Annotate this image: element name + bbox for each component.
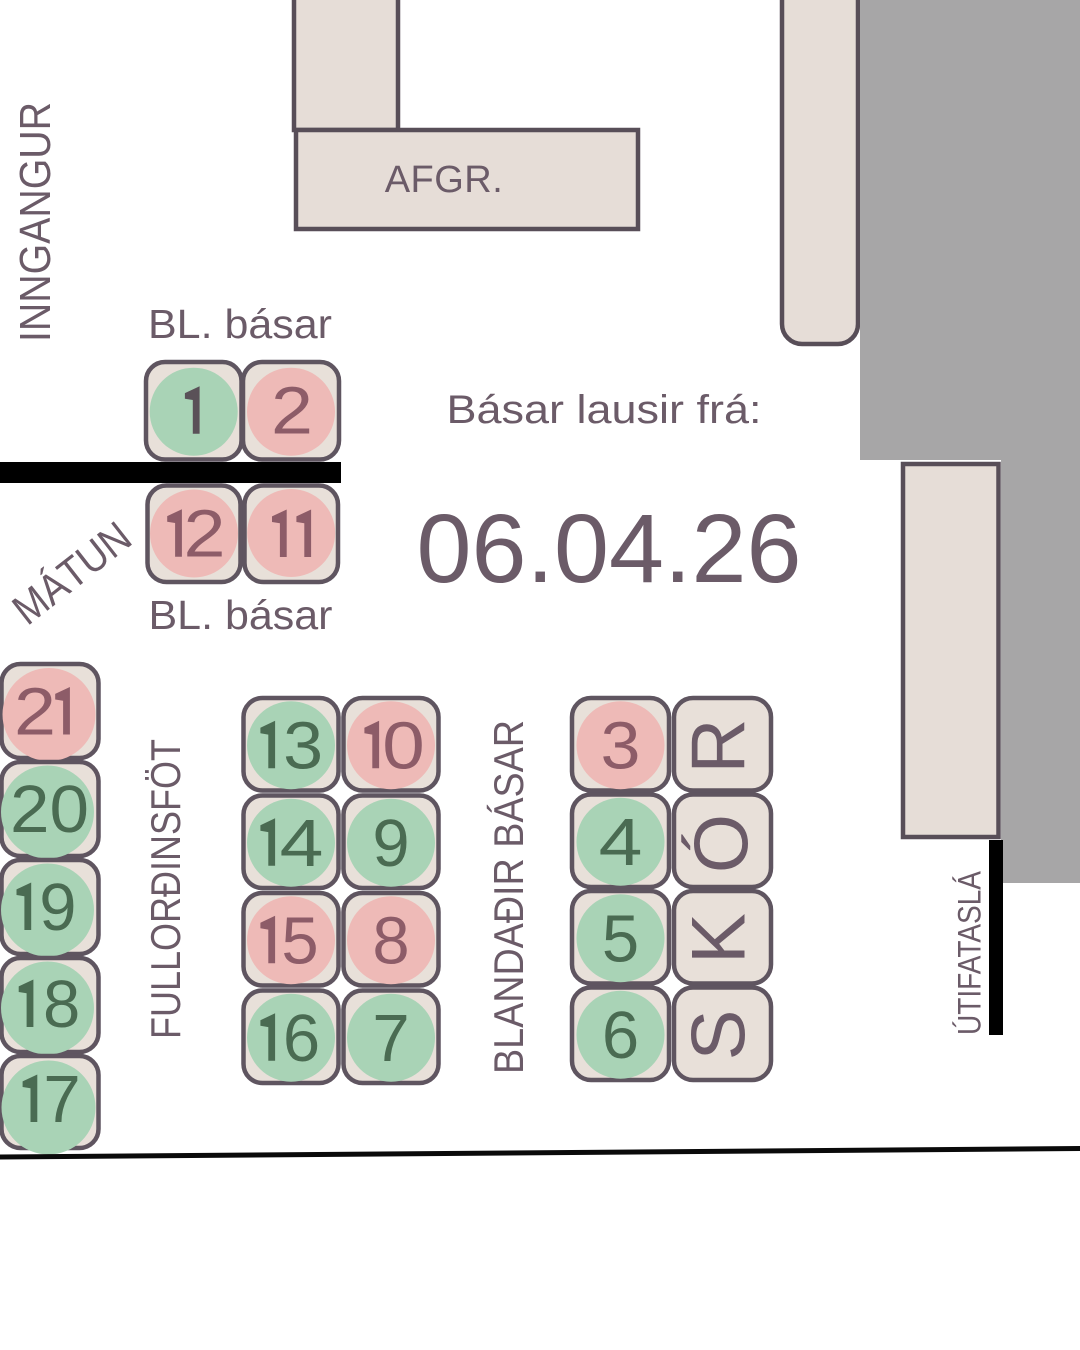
svg-text:2: 2 [184, 497, 226, 572]
svg-text:0: 0 [382, 708, 425, 783]
svg-text:BL. básar: BL. básar [148, 301, 332, 347]
svg-text:3: 3 [283, 708, 323, 783]
svg-text:7: 7 [372, 1001, 409, 1076]
svg-text:K: K [677, 913, 762, 964]
svg-text:ÚTIFATASLÁ: ÚTIFATASLÁ [952, 870, 988, 1035]
svg-text:7: 7 [43, 1062, 80, 1137]
svg-text:20: 20 [10, 772, 89, 847]
svg-text:R: R [677, 719, 762, 774]
svg-text:BL. básar: BL. básar [149, 592, 333, 638]
svg-text:2: 2 [271, 374, 313, 449]
svg-text:2: 2 [14, 675, 56, 750]
svg-text:5: 5 [602, 902, 639, 977]
svg-text:4: 4 [599, 805, 643, 880]
svg-text:9: 9 [39, 870, 76, 945]
svg-text:8: 8 [43, 967, 80, 1042]
svg-text:AFGR.: AFGR. [385, 159, 504, 201]
svg-text:BLANDAÐIR BÁSAR: BLANDAÐIR BÁSAR [485, 720, 532, 1074]
svg-text:INNGANGUR: INNGANGUR [11, 102, 60, 342]
svg-text:9: 9 [372, 806, 409, 881]
svg-text:6: 6 [283, 1001, 320, 1076]
svg-text:S: S [677, 1010, 762, 1061]
svg-text:FULLORÐINSFÖT: FULLORÐINSFÖT [142, 739, 189, 1039]
svg-text:4: 4 [280, 806, 324, 881]
svg-text:Básar lausir frá:: Básar lausir frá: [447, 388, 762, 432]
svg-text:6: 6 [602, 998, 639, 1073]
svg-text:5: 5 [281, 903, 318, 978]
svg-text:8: 8 [372, 903, 409, 978]
svg-text:06.04.26: 06.04.26 [417, 494, 802, 603]
svg-text:3: 3 [601, 708, 641, 783]
svg-text:Ó: Ó [680, 814, 765, 873]
